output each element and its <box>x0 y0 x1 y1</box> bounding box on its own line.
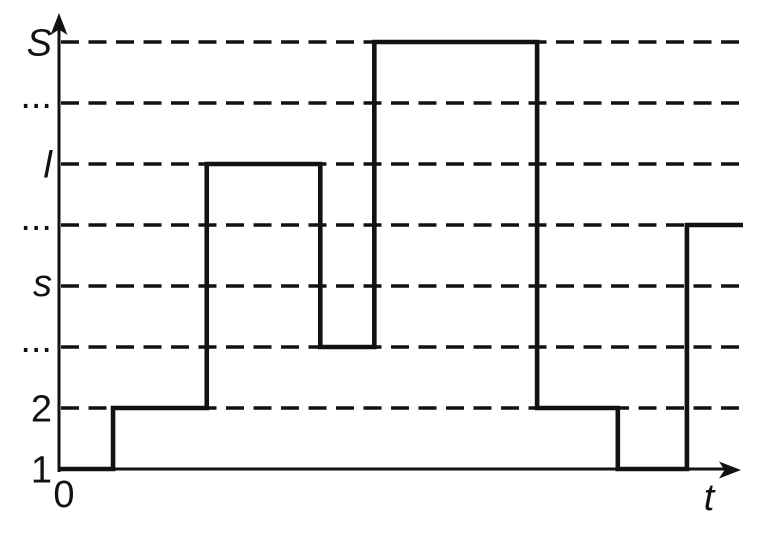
y-level-label-8: S <box>27 23 52 65</box>
x-axis-label: t <box>704 477 716 519</box>
y-level-label-1: 1 <box>31 450 52 492</box>
y-level-label-6: l <box>44 145 54 187</box>
y-level-label-2: 2 <box>31 389 52 431</box>
y-level-label-3: ... <box>20 319 52 361</box>
y-axis-level-labels: 12...s...l...S <box>20 23 53 492</box>
step-function-line <box>59 42 743 469</box>
y-level-label-5: ... <box>20 197 52 239</box>
gridlines <box>61 42 743 408</box>
step-chart: 12...s...l...S 0 t <box>0 0 763 540</box>
y-level-label-4: s <box>33 263 52 305</box>
priority-step-figure: 12...s...l...S 0 t <box>0 0 763 540</box>
origin-label: 0 <box>53 474 74 516</box>
y-level-label-7: ... <box>20 75 52 117</box>
